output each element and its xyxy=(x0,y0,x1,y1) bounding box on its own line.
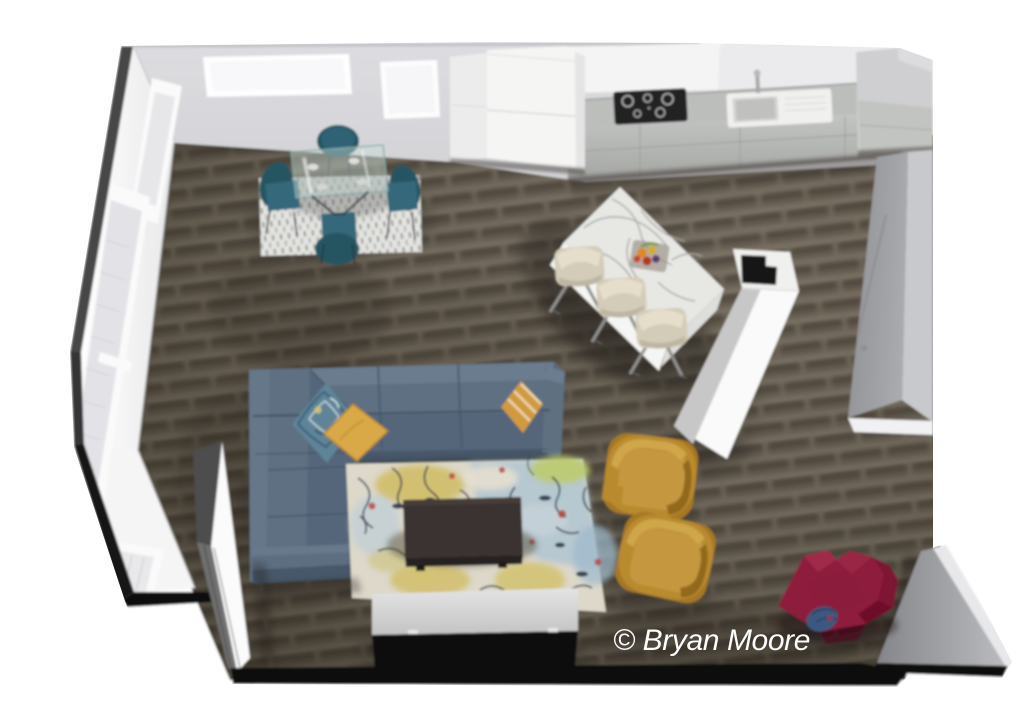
svg-text:© Bryan Moore: © Bryan Moore xyxy=(613,624,810,657)
